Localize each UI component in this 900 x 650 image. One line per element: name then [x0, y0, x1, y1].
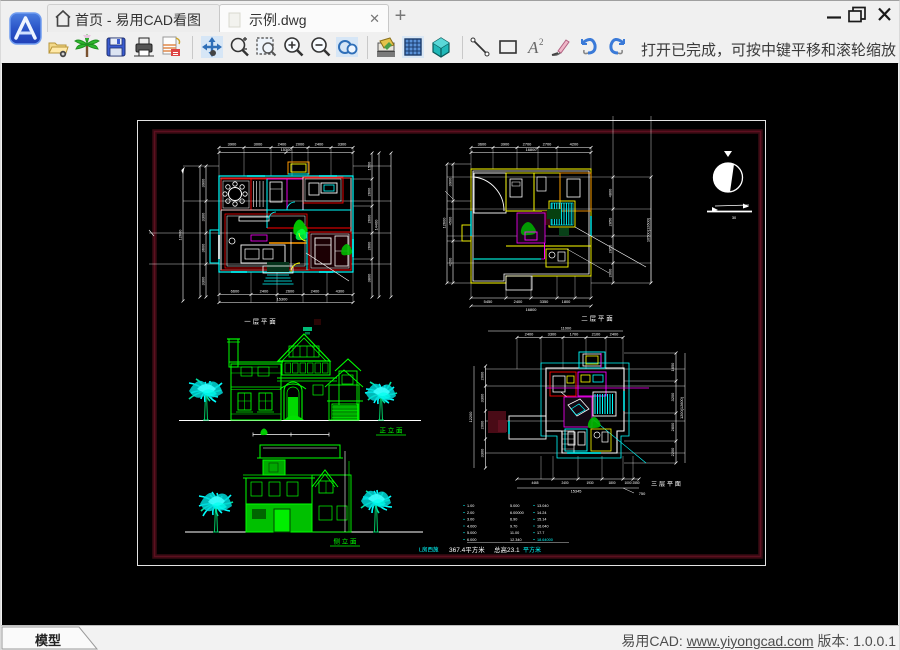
svg-text:6.000: 6.000 — [467, 538, 477, 542]
svg-text:1000: 1000 — [624, 481, 631, 485]
svg-text:2: 2 — [539, 37, 544, 47]
svg-text:1850: 1850 — [670, 362, 675, 371]
svg-text:1800: 1800 — [562, 299, 571, 304]
svg-text:12200: 12200 — [468, 411, 473, 423]
svg-text:16800: 16800 — [526, 147, 538, 152]
svg-text:16.040: 16.040 — [537, 524, 549, 528]
svg-text:2200: 2200 — [670, 447, 675, 456]
svg-text:15.14: 15.14 — [537, 518, 547, 522]
svg-text:侧 立 面: 侧 立 面 — [333, 537, 357, 546]
svg-text:18.64000: 18.64000 — [537, 538, 553, 542]
svg-text:3600: 3600 — [478, 142, 487, 147]
svg-text:总高23.1: 总高23.1 — [494, 545, 520, 554]
svg-text:2400: 2400 — [315, 142, 324, 147]
svg-text:2000: 2000 — [480, 371, 485, 380]
svg-text:4300: 4300 — [336, 289, 345, 294]
svg-text:2800: 2800 — [670, 422, 675, 431]
svg-text:15300: 15300 — [277, 297, 289, 302]
svg-text:2850: 2850 — [608, 244, 613, 253]
svg-text:1700: 1700 — [570, 332, 579, 337]
svg-text:3300: 3300 — [201, 212, 206, 221]
svg-text:5.000: 5.000 — [467, 531, 477, 535]
svg-text:2400: 2400 — [561, 481, 568, 485]
svg-text:3900: 3900 — [201, 178, 206, 187]
svg-text:2600: 2600 — [286, 289, 295, 294]
svg-text:2700: 2700 — [523, 142, 532, 147]
svg-text:4200: 4200 — [570, 142, 579, 147]
svg-text:3300: 3300 — [480, 393, 485, 402]
svg-text:3300: 3300 — [548, 332, 557, 337]
svg-text:1500: 1500 — [367, 161, 372, 170]
svg-text:12600: 12600 — [442, 217, 447, 229]
svg-text:2600: 2600 — [367, 187, 372, 196]
svg-text:2000: 2000 — [480, 420, 485, 429]
svg-text:3300: 3300 — [338, 142, 347, 147]
svg-text:2600: 2600 — [367, 241, 372, 250]
svg-text:2400: 2400 — [278, 142, 287, 147]
svg-text:3300: 3300 — [201, 276, 206, 285]
svg-text:2850: 2850 — [608, 217, 613, 226]
svg-text:4.000: 4.000 — [467, 524, 477, 528]
svg-text:A: A — [527, 38, 539, 57]
svg-text:12.340: 12.340 — [510, 538, 522, 542]
svg-text:16800: 16800 — [526, 307, 538, 312]
svg-text:14400: 14400 — [374, 219, 379, 231]
svg-text:4800: 4800 — [608, 188, 613, 197]
svg-text:6.90: 6.90 — [510, 518, 517, 522]
svg-text:13.040: 13.040 — [537, 504, 549, 508]
svg-text:10500(12600): 10500(12600) — [646, 217, 651, 242]
svg-text:1930: 1930 — [586, 481, 593, 485]
svg-text:1800: 1800 — [608, 481, 615, 485]
svg-text:3350: 3350 — [540, 299, 549, 304]
svg-text:30: 30 — [732, 215, 737, 220]
svg-text:11000: 11000 — [561, 326, 572, 331]
svg-text:3000: 3000 — [254, 142, 263, 147]
svg-text:11.00: 11.00 — [510, 531, 519, 535]
svg-text:4200: 4200 — [448, 257, 453, 266]
svg-text:4465: 4465 — [531, 481, 538, 485]
svg-text:1.00: 1.00 — [467, 504, 474, 508]
svg-text:2400: 2400 — [311, 289, 320, 294]
svg-text:2100: 2100 — [592, 332, 601, 337]
svg-text:9.70: 9.70 — [510, 524, 517, 528]
svg-text:4500: 4500 — [448, 216, 453, 225]
svg-text:5450: 5450 — [484, 299, 493, 304]
svg-text:17.7: 17.7 — [537, 531, 544, 535]
svg-text:1200(12600): 1200(12600) — [679, 396, 684, 419]
svg-text:15345: 15345 — [571, 489, 582, 494]
svg-text:5.000: 5.000 — [510, 504, 520, 508]
svg-text:14.24: 14.24 — [537, 511, 547, 515]
svg-text:750: 750 — [639, 491, 646, 496]
svg-text:2.00: 2.00 — [467, 511, 474, 515]
svg-text:2600: 2600 — [367, 214, 372, 223]
svg-text:3900: 3900 — [501, 142, 510, 147]
svg-text:6.00000: 6.00000 — [510, 511, 524, 515]
svg-text:一 层 平 面: 一 层 平 面 — [244, 318, 276, 326]
svg-text:2400: 2400 — [525, 332, 534, 337]
svg-text:二 层 平 面: 二 层 平 面 — [581, 315, 613, 323]
svg-text:15300: 15300 — [281, 147, 293, 152]
svg-text:三 层 平 面: 三 层 平 面 — [651, 481, 681, 488]
svg-text:2400: 2400 — [610, 332, 619, 337]
svg-text:367.4平方米: 367.4平方米 — [449, 545, 485, 554]
svg-text:2700: 2700 — [543, 142, 552, 147]
svg-text:12600: 12600 — [178, 229, 183, 241]
svg-text:3200: 3200 — [670, 392, 675, 401]
svg-text:3300: 3300 — [480, 448, 485, 457]
svg-text:2000: 2000 — [296, 142, 305, 147]
svg-text:3900: 3900 — [228, 142, 237, 147]
svg-text:正 立 面: 正 立 面 — [379, 426, 403, 435]
svg-text:3.00: 3.00 — [467, 518, 474, 522]
svg-text:3600: 3600 — [201, 243, 206, 252]
svg-text:3900: 3900 — [448, 177, 453, 186]
svg-text:平方米: 平方米 — [523, 546, 541, 554]
svg-text:2400: 2400 — [514, 299, 523, 304]
svg-text:2550: 2550 — [632, 481, 639, 485]
svg-text:3800: 3800 — [367, 273, 372, 282]
svg-text:2400: 2400 — [260, 289, 269, 294]
svg-text:6600: 6600 — [231, 289, 240, 294]
svg-text:L房西施: L房西施 — [419, 546, 439, 554]
